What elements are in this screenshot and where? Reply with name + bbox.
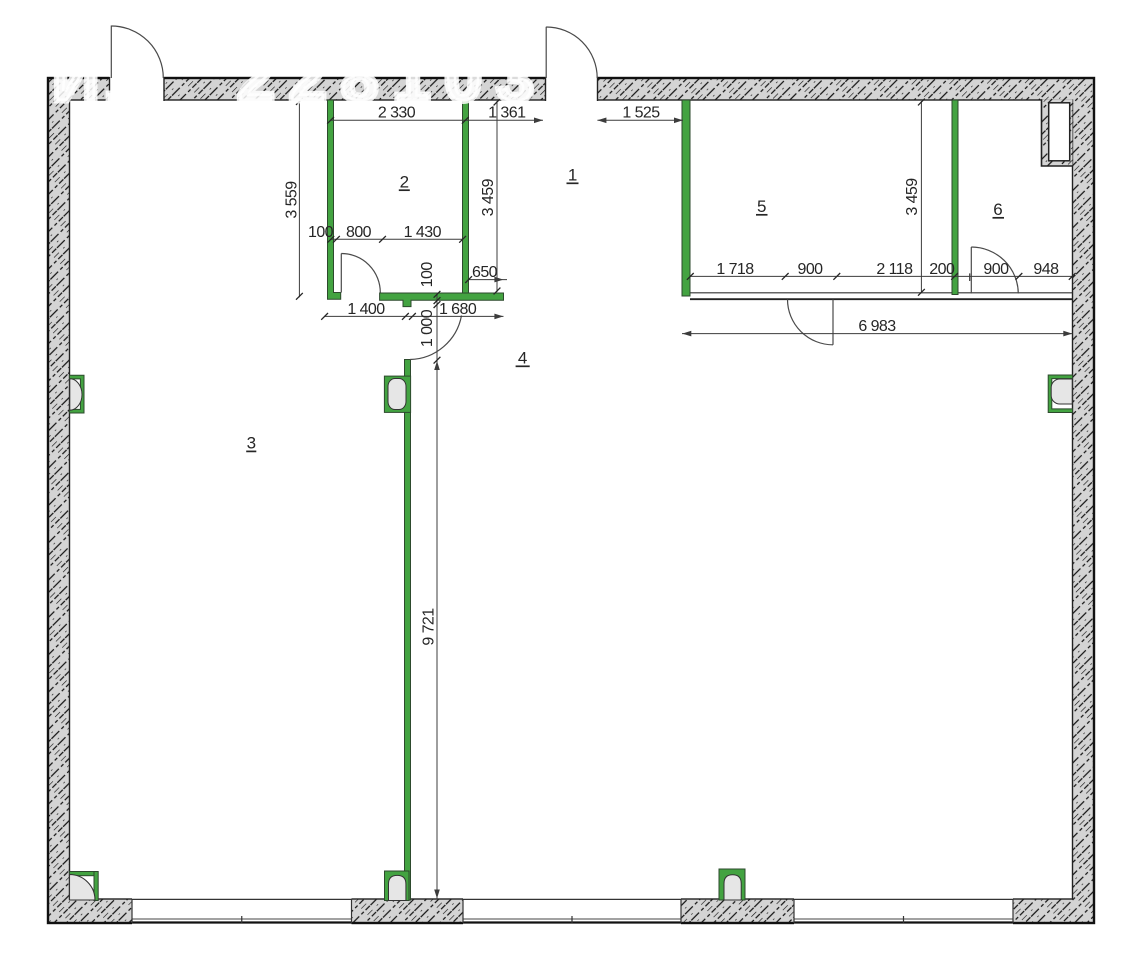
svg-text:3 459: 3 459 <box>904 178 921 216</box>
svg-text:6 983: 6 983 <box>858 318 896 335</box>
svg-text:3 559: 3 559 <box>284 181 301 219</box>
svg-text:650: 650 <box>472 264 498 281</box>
svg-text:1 400: 1 400 <box>347 301 385 318</box>
svg-text:948: 948 <box>1033 261 1059 278</box>
svg-text:5: 5 <box>757 197 766 216</box>
svg-text:900: 900 <box>983 261 1009 278</box>
svg-text:2: 2 <box>400 172 409 191</box>
svg-text:1 430: 1 430 <box>404 224 442 241</box>
svg-text:100: 100 <box>308 224 334 241</box>
svg-text:4: 4 <box>518 349 527 368</box>
svg-text:1 680: 1 680 <box>439 301 477 318</box>
svg-text:100: 100 <box>419 262 436 288</box>
svg-text:1 000: 1 000 <box>419 309 436 347</box>
svg-text:ИД: ИД <box>52 41 162 115</box>
svg-text:800: 800 <box>346 224 372 241</box>
svg-text:1 525: 1 525 <box>622 105 660 122</box>
svg-text:1 718: 1 718 <box>716 261 754 278</box>
svg-text:6: 6 <box>993 200 1002 219</box>
svg-text:228103: 228103 <box>237 40 548 116</box>
svg-text:1: 1 <box>568 166 577 185</box>
svg-text:200: 200 <box>929 261 955 278</box>
svg-text:9 721: 9 721 <box>421 608 438 646</box>
svg-text:2 118: 2 118 <box>876 261 913 278</box>
svg-text:3 459: 3 459 <box>480 178 497 216</box>
svg-text:3: 3 <box>247 434 256 453</box>
svg-text:900: 900 <box>797 261 823 278</box>
